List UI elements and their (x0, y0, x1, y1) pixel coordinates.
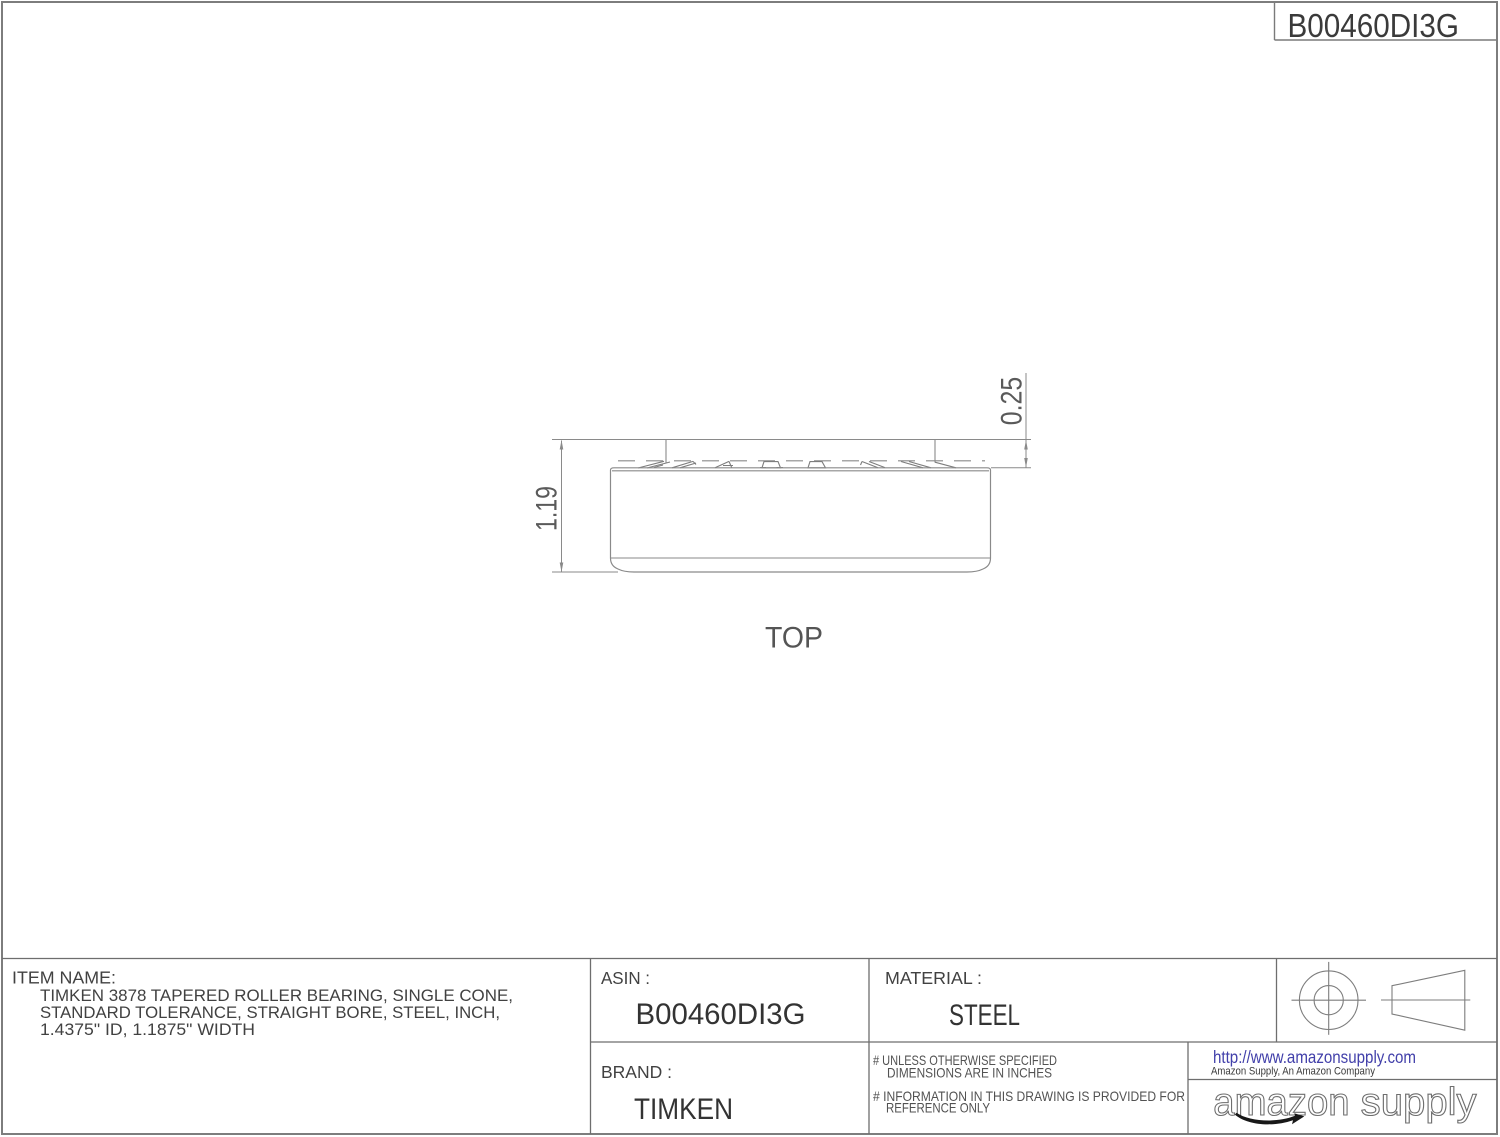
svg-text:DIMENSIONS ARE IN INCHES: DIMENSIONS ARE IN INCHES (887, 1066, 1052, 1081)
svg-text:REFERENCE ONLY: REFERENCE ONLY (886, 1101, 990, 1116)
svg-text:TOP: TOP (765, 622, 823, 655)
svg-text:STEEL: STEEL (949, 999, 1020, 1032)
svg-text:supply: supply (1361, 1081, 1477, 1124)
svg-text:1.4375" ID, 1.1875" WIDTH: 1.4375" ID, 1.1875" WIDTH (40, 1020, 255, 1039)
svg-text:MATERIAL :: MATERIAL : (885, 968, 982, 988)
svg-text:1.19: 1.19 (531, 486, 564, 531)
svg-text:BRAND :: BRAND : (601, 1062, 672, 1082)
svg-text:amazon: amazon (1213, 1081, 1349, 1124)
svg-text:TIMKEN: TIMKEN (634, 1093, 733, 1126)
svg-text:B00460DI3G: B00460DI3G (1288, 7, 1460, 44)
svg-text:0.25: 0.25 (996, 377, 1029, 426)
svg-text:B00460DI3G: B00460DI3G (636, 998, 806, 1031)
svg-text:Amazon Supply, An Amazon Compa: Amazon Supply, An Amazon Company (1211, 1066, 1376, 1078)
svg-text:ASIN :: ASIN : (601, 968, 650, 988)
svg-text:http://www.amazonsupply.com: http://www.amazonsupply.com (1213, 1047, 1416, 1067)
svg-text:ITEM NAME:: ITEM NAME: (12, 968, 116, 988)
